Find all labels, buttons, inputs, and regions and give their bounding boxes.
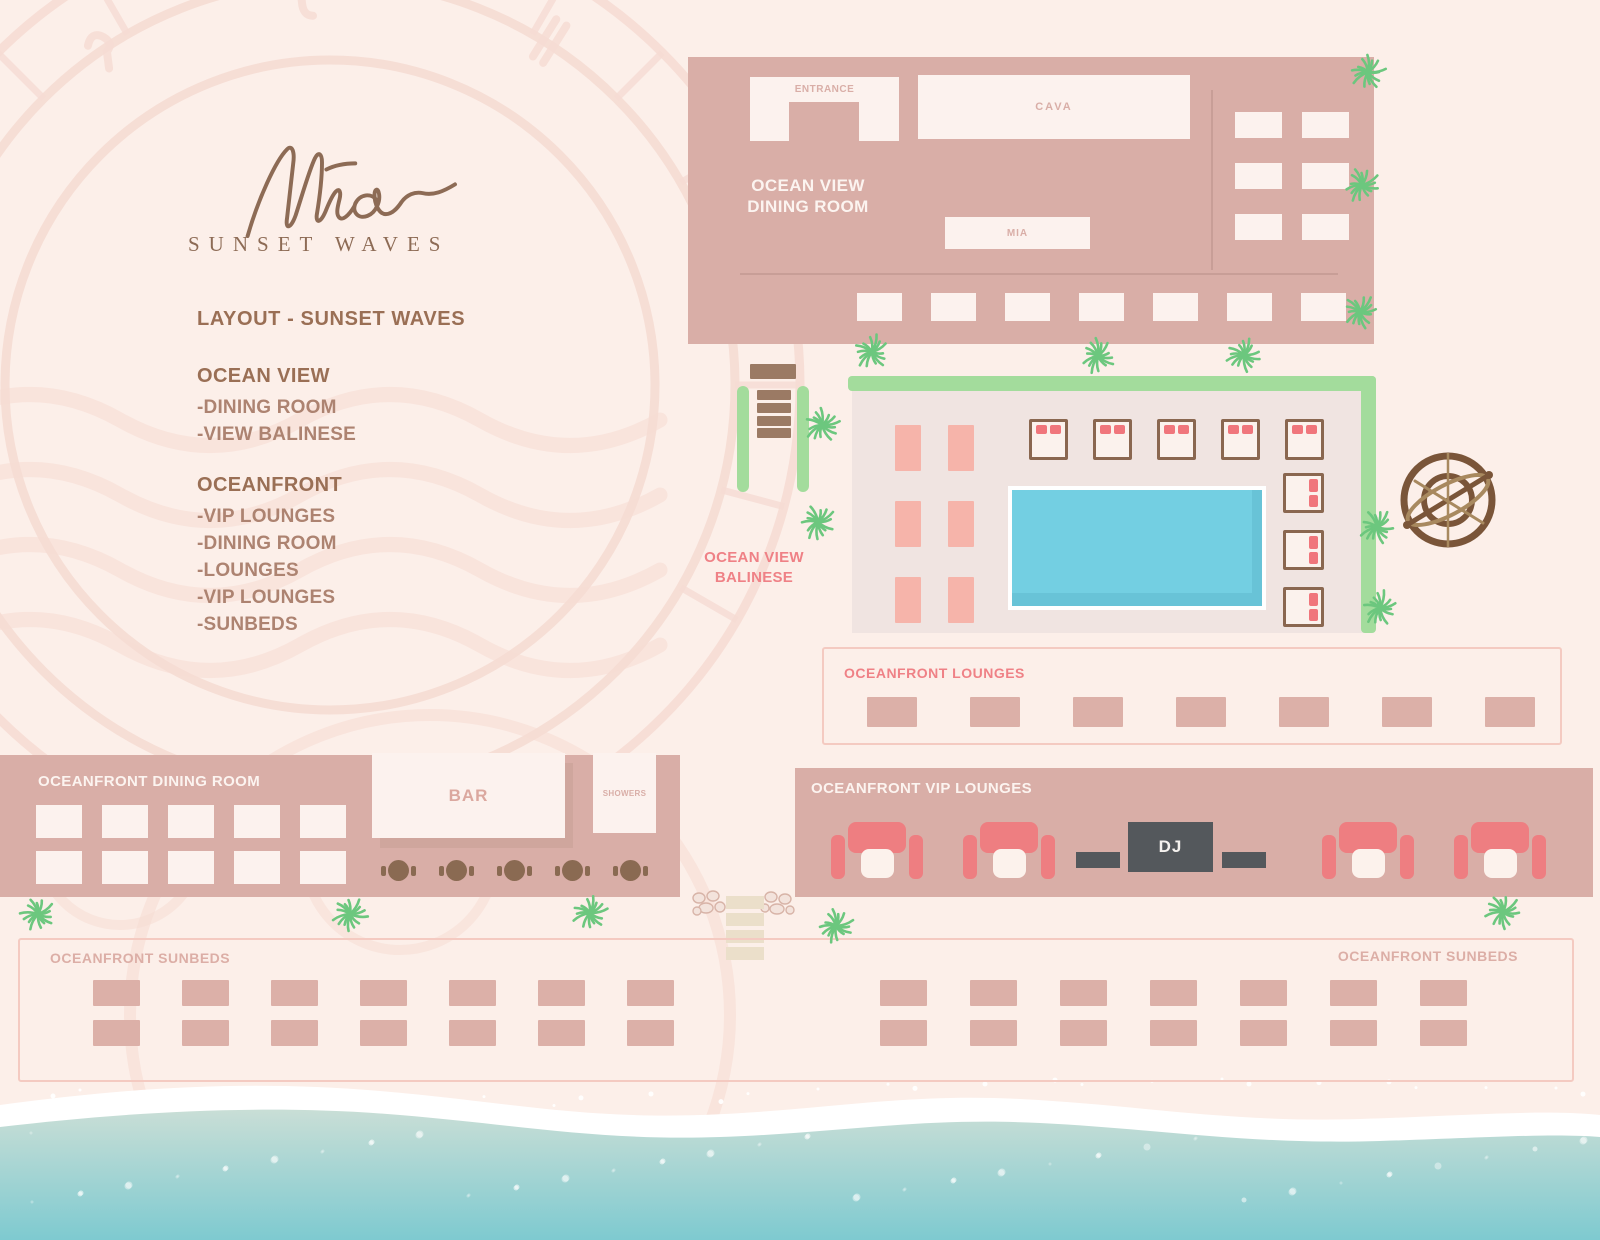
sunbed	[1330, 1020, 1377, 1046]
pillow	[1114, 425, 1125, 434]
dining-table	[1301, 293, 1346, 321]
entrance-area: ENTRANCE	[750, 77, 899, 141]
vip-table	[993, 849, 1026, 878]
lounge	[1279, 697, 1329, 727]
cava-area: CAVA	[918, 75, 1190, 139]
balinese-beds-right	[1283, 473, 1324, 627]
bar-label: BAR	[449, 786, 489, 806]
legend-item: -DINING ROOM	[197, 394, 557, 421]
stair-step	[757, 428, 791, 438]
sunbed	[1150, 980, 1197, 1006]
dining-table	[857, 293, 902, 321]
sofa-arm	[1400, 835, 1414, 879]
vip-lounge-group	[1322, 822, 1414, 884]
bar-stools-row	[388, 860, 641, 881]
mia-label: MIA	[1007, 228, 1028, 239]
wall-divider	[740, 273, 1338, 275]
dining-table	[234, 851, 280, 884]
sofa-arm	[1532, 835, 1546, 879]
ocean-view-dining-building: ENTRANCE CAVA OCEAN VIEW DINING ROOM MIA	[688, 57, 1374, 344]
bar-stool	[504, 860, 525, 881]
dining-table	[1227, 293, 1272, 321]
sunbed	[1420, 980, 1467, 1006]
bar-area: BAR	[372, 753, 565, 838]
dining-table	[168, 805, 214, 838]
lounge	[1073, 697, 1123, 727]
oceanfront-lounges-zone: OCEANFRONT LOUNGES	[822, 647, 1562, 745]
sunbed	[182, 980, 229, 1006]
balinese-bed	[1283, 473, 1324, 513]
sunbed	[880, 980, 927, 1006]
stair-landing	[750, 364, 796, 379]
legend-section-ocean-view: OCEAN VIEW -DINING ROOM -VIEW BALINESE	[197, 365, 557, 448]
showers-area: SHOWERS	[593, 753, 656, 833]
sunbed	[1150, 1020, 1197, 1046]
ocean-waves	[0, 1075, 1600, 1240]
sunbed	[1240, 1020, 1287, 1046]
bottom-tables-row	[857, 293, 1346, 321]
balinese-bed	[1283, 587, 1324, 627]
sunbed	[271, 980, 318, 1006]
sunbed	[627, 1020, 674, 1046]
lounge	[1485, 697, 1535, 727]
stair-step	[757, 390, 791, 400]
legend-item: -LOUNGES	[197, 557, 557, 584]
dining-table	[931, 293, 976, 321]
sunbed	[449, 980, 496, 1006]
legend-item: -DINING ROOM	[197, 530, 557, 557]
legend-item: -VIP LOUNGES	[197, 584, 557, 611]
sunbed	[880, 1020, 927, 1046]
armillary-compass-icon	[1393, 445, 1503, 555]
dining-table	[300, 805, 346, 838]
pillow	[1309, 609, 1318, 622]
oceanfront-dining-tables	[36, 805, 346, 884]
ocean-view-balinese-label: OCEAN VIEW BALINESE	[688, 548, 820, 588]
sunbed	[360, 980, 407, 1006]
sunbeds-grid-left	[93, 980, 674, 1046]
pillow	[1309, 536, 1318, 549]
oceanfront-lounges-label: OCEANFRONT LOUNGES	[844, 665, 1025, 681]
entrance-label: ENTRANCE	[750, 77, 899, 95]
legend-item: -VIEW BALINESE	[197, 421, 557, 448]
pillow	[1292, 425, 1303, 434]
balinese-bed	[1283, 530, 1324, 570]
balinese-bed	[1093, 419, 1132, 460]
mia-logo-script	[225, 138, 475, 243]
dj-speaker	[1222, 852, 1266, 868]
balinese-sunbed-grid	[895, 425, 974, 623]
dining-table	[1302, 163, 1349, 189]
vip-table	[861, 849, 894, 878]
sunbed	[271, 1020, 318, 1046]
sunbed	[970, 980, 1017, 1006]
sofa-arm	[1041, 835, 1055, 879]
sofa-arm	[1454, 835, 1468, 879]
stair-step	[757, 403, 791, 413]
sunbed	[449, 1020, 496, 1046]
sunbed	[627, 980, 674, 1006]
dining-table	[300, 851, 346, 884]
pillow	[1100, 425, 1111, 434]
sunbed	[360, 1020, 407, 1046]
sunbed	[538, 980, 585, 1006]
lounge	[1382, 697, 1432, 727]
legend-item: -VIP LOUNGES	[197, 503, 557, 530]
legend-title: LAYOUT - SUNSET WAVES	[197, 308, 557, 331]
dj-booth: DJ	[1128, 822, 1213, 872]
hedge-right	[1361, 376, 1376, 633]
dining-table	[102, 805, 148, 838]
sunbed	[895, 501, 921, 547]
sunbed	[948, 501, 974, 547]
balinese-beds-top	[1029, 419, 1324, 460]
sunbed	[895, 425, 921, 471]
cava-label: CAVA	[1035, 101, 1073, 113]
step	[726, 896, 764, 909]
dining-table	[1302, 214, 1349, 240]
hedge-strip	[737, 386, 749, 492]
dining-table	[1005, 293, 1050, 321]
sofa-arm	[909, 835, 923, 879]
sofa-arm	[831, 835, 845, 879]
layout-map: SUNSET WAVES LAYOUT - SUNSET WAVES OCEAN…	[0, 0, 1600, 1240]
vip-lounges-building: OCEANFRONT VIP LOUNGES DJ	[795, 768, 1593, 897]
lounges-row	[867, 697, 1535, 727]
legend-section-oceanfront: OCEANFRONT -VIP LOUNGES -DINING ROOM -LO…	[197, 474, 557, 638]
dining-table	[36, 851, 82, 884]
sofa-arm	[1322, 835, 1336, 879]
pillow	[1309, 593, 1318, 606]
sofa-arm	[963, 835, 977, 879]
pillow	[1164, 425, 1175, 434]
dining-table	[1302, 112, 1349, 138]
legend-heading: OCEAN VIEW	[197, 365, 557, 388]
step	[726, 913, 764, 926]
vip-lounge-group	[831, 822, 923, 884]
pillow	[1228, 425, 1239, 434]
stair-step	[757, 416, 791, 426]
sunbed	[93, 980, 140, 1006]
bar-stool	[388, 860, 409, 881]
dining-table	[1235, 214, 1282, 240]
dj-speaker	[1076, 852, 1120, 868]
lounge	[1176, 697, 1226, 727]
lounge	[867, 697, 917, 727]
sunbed	[895, 577, 921, 623]
dining-table	[36, 805, 82, 838]
dining-table	[1079, 293, 1124, 321]
vip-groups-right	[1322, 822, 1546, 884]
sunbed	[1420, 1020, 1467, 1046]
pillow	[1306, 425, 1317, 434]
pool	[1008, 486, 1266, 610]
dining-table	[1235, 112, 1282, 138]
pillow	[1309, 495, 1318, 508]
sunbed	[1330, 980, 1377, 1006]
entrance-doorway	[789, 102, 859, 141]
balinese-bed	[1029, 419, 1068, 460]
legend-item: -SUNBEDS	[197, 611, 557, 638]
hedge-strip	[797, 386, 809, 492]
lounge	[970, 697, 1020, 727]
pillow	[1242, 425, 1253, 434]
sunbed	[93, 1020, 140, 1046]
sunbed	[538, 1020, 585, 1046]
oceanfront-dining-label: OCEANFRONT DINING ROOM	[38, 773, 260, 790]
dining-table	[1153, 293, 1198, 321]
pillow	[1050, 425, 1061, 434]
vip-table	[1352, 849, 1385, 878]
sunbed	[1060, 1020, 1107, 1046]
sunbed	[948, 577, 974, 623]
dining-table	[168, 851, 214, 884]
vip-lounge-group	[1454, 822, 1546, 884]
logo-subtitle: SUNSET WAVES	[188, 232, 488, 257]
sunbeds-grid-right	[880, 980, 1467, 1046]
vip-table	[1484, 849, 1517, 878]
sunbeds-label-right: OCEANFRONT SUNBEDS	[1338, 948, 1518, 964]
bar-stool	[562, 860, 583, 881]
sunbed	[970, 1020, 1017, 1046]
pillow	[1036, 425, 1047, 434]
showers-label: SHOWERS	[603, 789, 646, 798]
legend: LAYOUT - SUNSET WAVES OCEAN VIEW -DINING…	[197, 308, 557, 664]
dining-table	[102, 851, 148, 884]
pillow	[1178, 425, 1189, 434]
legend-heading: OCEANFRONT	[197, 474, 557, 497]
sunbeds-label-left: OCEANFRONT SUNBEDS	[50, 950, 230, 966]
vip-groups-left	[831, 822, 1055, 884]
dining-table	[234, 805, 280, 838]
balinese-bed	[1221, 419, 1260, 460]
dining-table	[1235, 163, 1282, 189]
balinese-bed	[1157, 419, 1196, 460]
mia-area: MIA	[945, 217, 1090, 249]
vip-lounges-label: OCEANFRONT VIP LOUNGES	[811, 780, 1032, 797]
pool-water	[1012, 490, 1262, 606]
bar-stool	[446, 860, 467, 881]
sunbed	[948, 425, 974, 471]
balinese-bed	[1285, 419, 1324, 460]
dining-tables-grid	[1235, 112, 1349, 240]
sunbed	[182, 1020, 229, 1046]
ocean-view-dining-label: OCEAN VIEW DINING ROOM	[718, 175, 898, 217]
sunbed	[1240, 980, 1287, 1006]
bar-stool	[620, 860, 641, 881]
wall-divider	[1211, 90, 1213, 270]
pillow	[1309, 479, 1318, 492]
sunbed	[1060, 980, 1107, 1006]
pillow	[1309, 552, 1318, 565]
vip-lounge-group	[963, 822, 1055, 884]
hedge-top	[848, 376, 1376, 391]
